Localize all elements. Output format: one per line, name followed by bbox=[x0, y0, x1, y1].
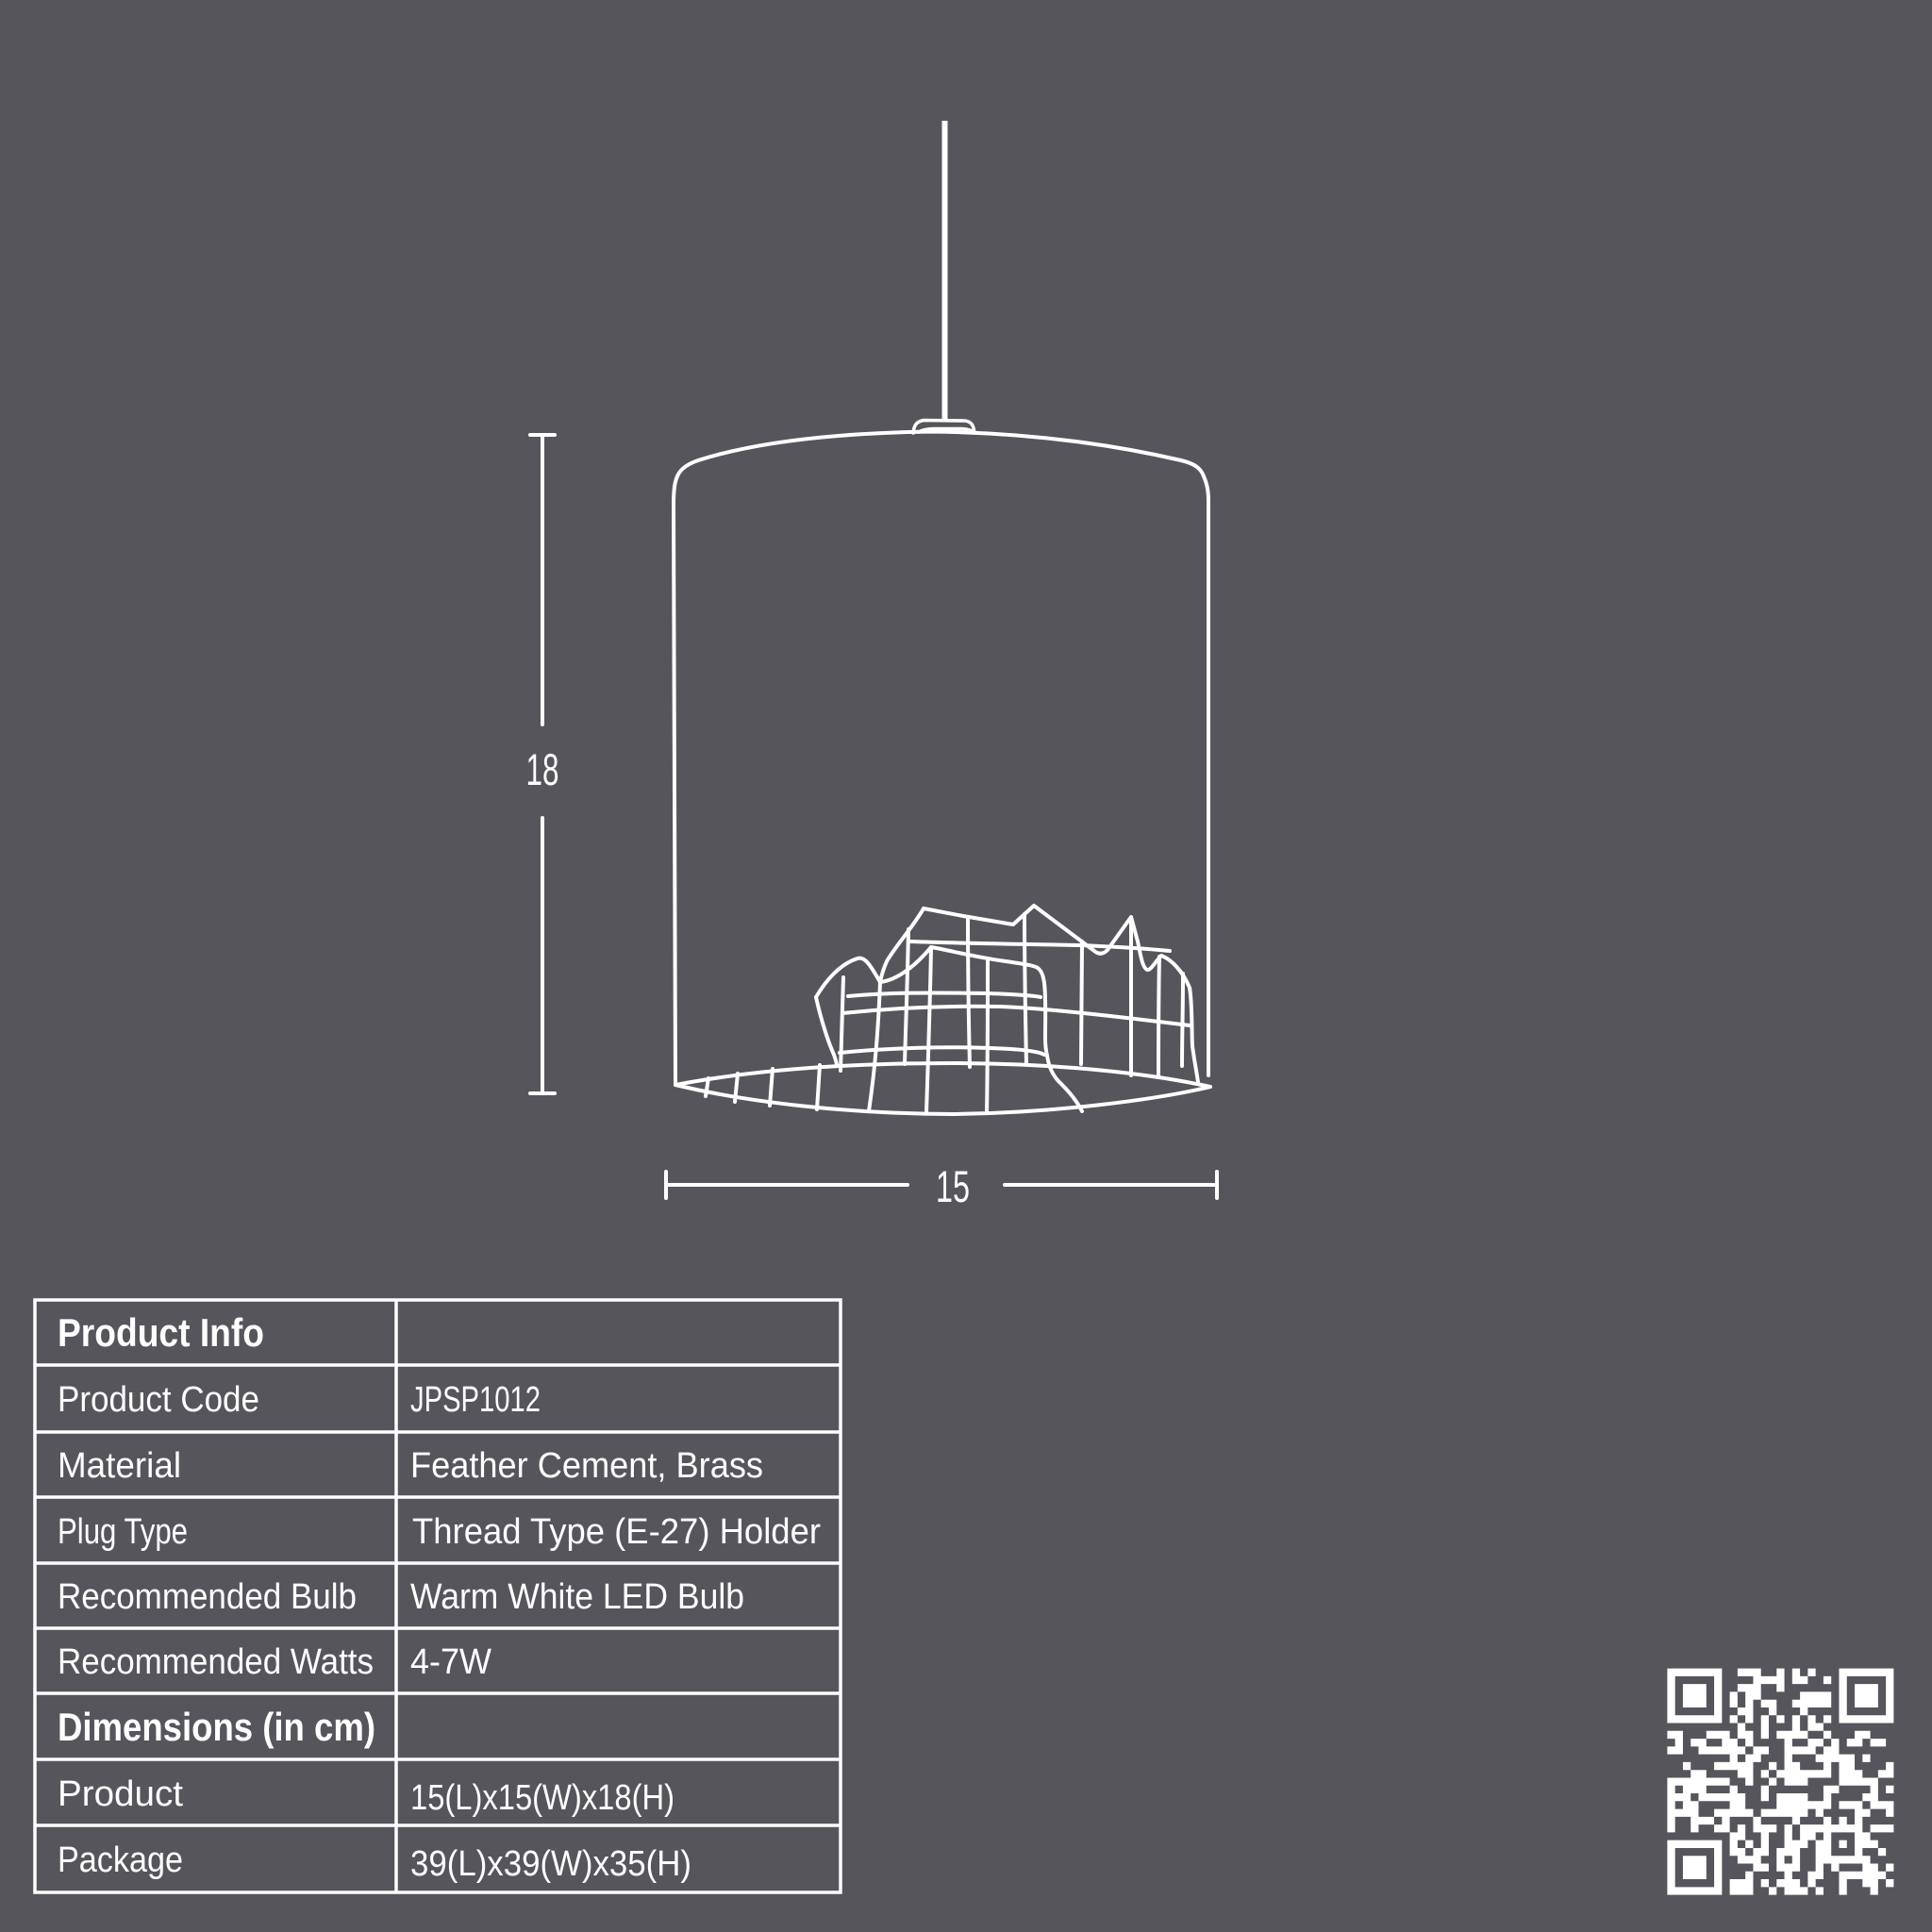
svg-text:Feather Cement, Brass: Feather Cement, Brass bbox=[410, 1446, 763, 1486]
svg-text:Thread Type (E-27) Holder: Thread Type (E-27) Holder bbox=[412, 1512, 821, 1552]
svg-text:Product Code: Product Code bbox=[58, 1380, 259, 1420]
svg-text:Recommended Watts: Recommended Watts bbox=[58, 1642, 374, 1682]
svg-text:Package: Package bbox=[58, 1840, 183, 1880]
svg-text:15: 15 bbox=[936, 1161, 970, 1211]
svg-text:39(L)x39(W)x35(H): 39(L)x39(W)x35(H) bbox=[410, 1844, 691, 1884]
svg-text:Plug Type: Plug Type bbox=[58, 1512, 188, 1552]
svg-text:15(L)x15(W)x18(H): 15(L)x15(W)x18(H) bbox=[410, 1778, 675, 1818]
svg-text:Recommended Bulb: Recommended Bulb bbox=[58, 1577, 357, 1617]
svg-text:18: 18 bbox=[526, 744, 559, 794]
svg-text:Product: Product bbox=[58, 1774, 183, 1814]
svg-text:Warm White LED Bulb: Warm White LED Bulb bbox=[410, 1577, 744, 1617]
svg-text:Dimensions (in cm): Dimensions (in cm) bbox=[58, 1705, 375, 1749]
svg-text:Product Info: Product Info bbox=[58, 1310, 264, 1355]
svg-text:JPSP1012: JPSP1012 bbox=[410, 1380, 541, 1420]
svg-text:Material: Material bbox=[58, 1446, 181, 1486]
svg-text:4-7W: 4-7W bbox=[410, 1642, 491, 1682]
